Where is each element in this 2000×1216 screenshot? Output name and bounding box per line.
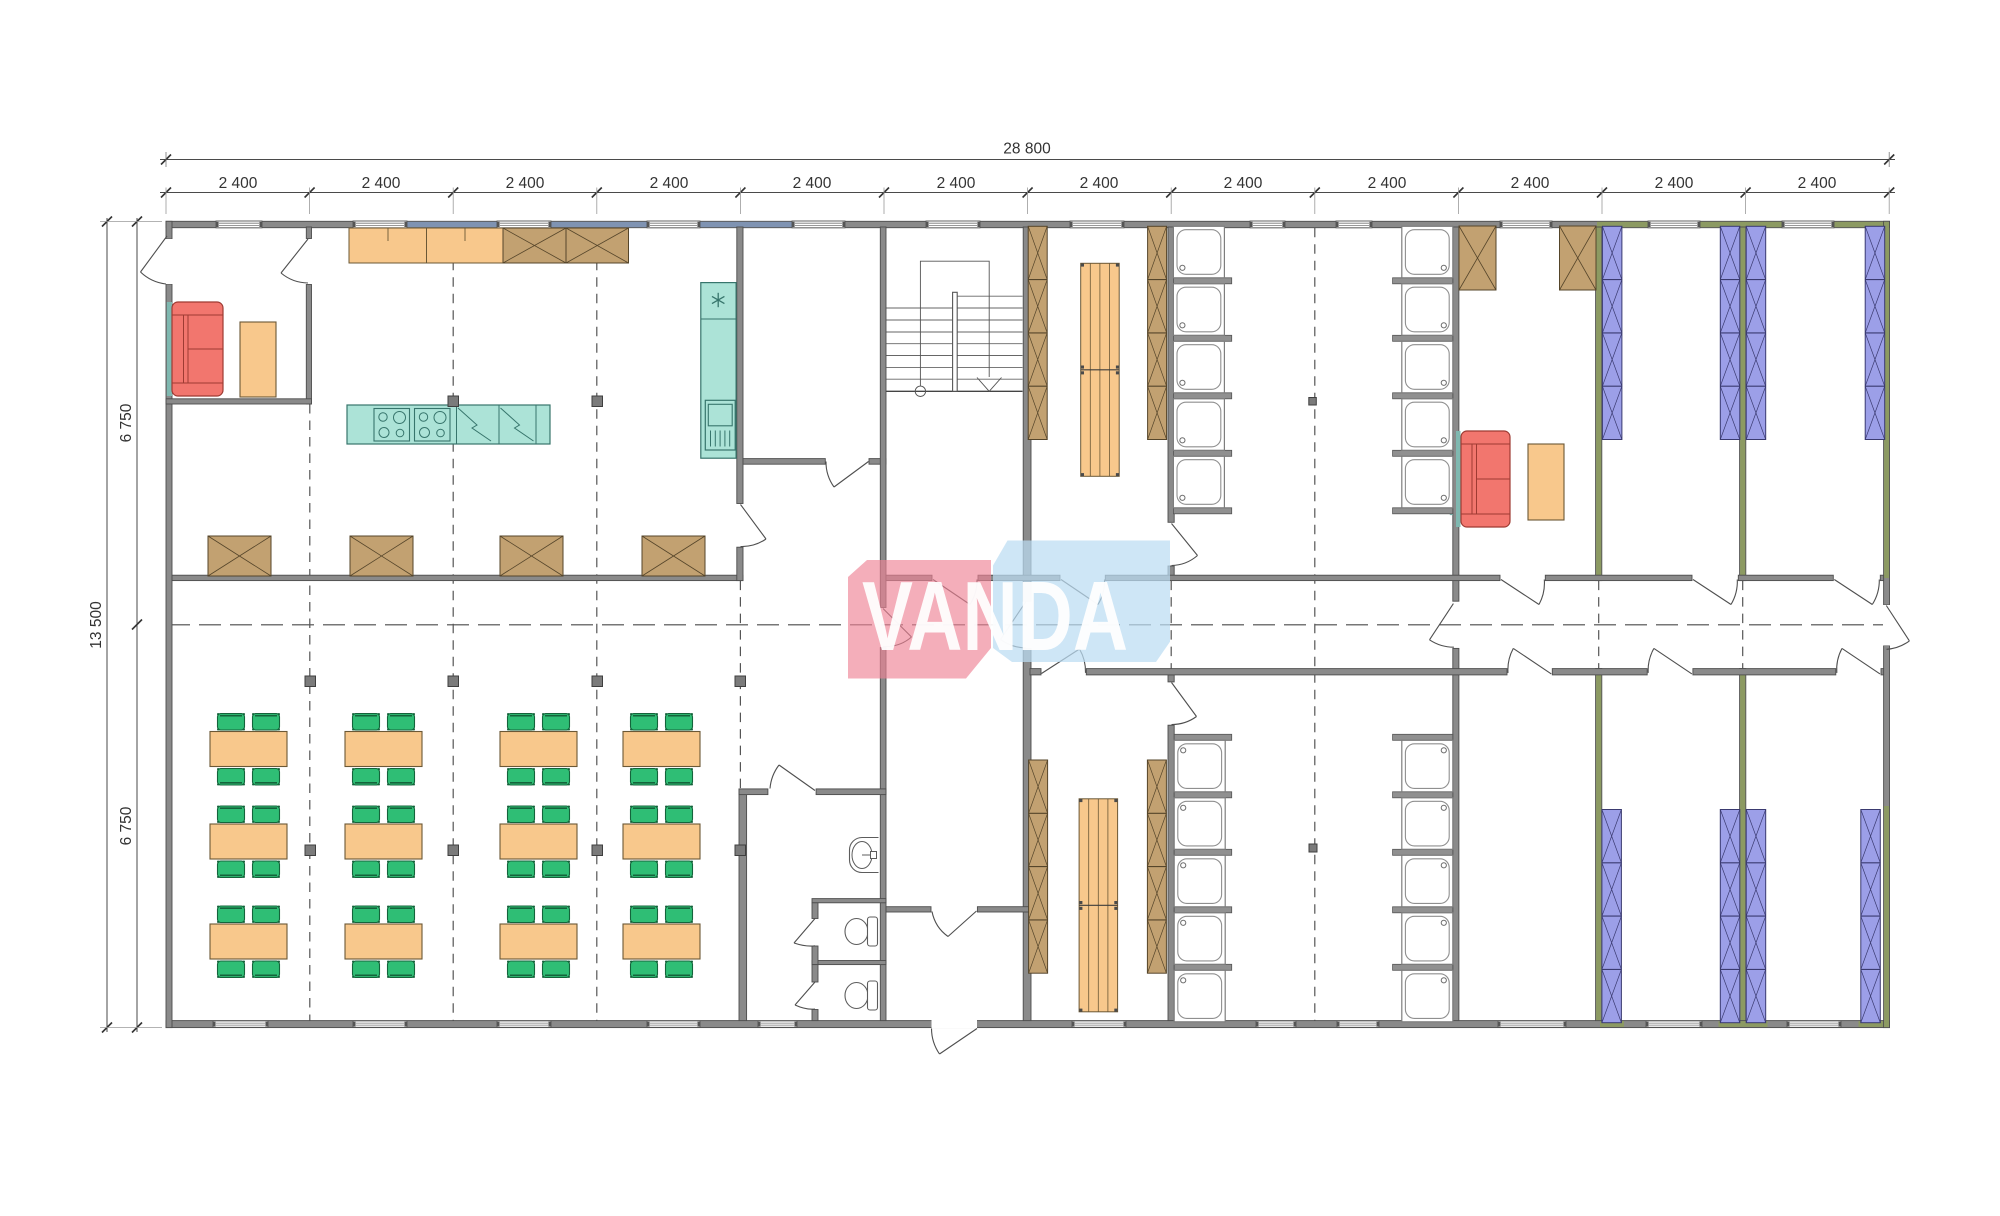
svg-text:2 400: 2 400 xyxy=(793,175,832,192)
svg-text:2 400: 2 400 xyxy=(1798,175,1837,192)
svg-text:13 500: 13 500 xyxy=(88,601,105,649)
svg-text:2 400: 2 400 xyxy=(506,175,545,192)
svg-text:VANDA: VANDA xyxy=(862,561,1128,671)
svg-text:2 400: 2 400 xyxy=(650,175,689,192)
svg-text:6 750: 6 750 xyxy=(118,806,135,845)
svg-text:2 400: 2 400 xyxy=(937,175,976,192)
svg-text:2 400: 2 400 xyxy=(362,175,401,192)
svg-text:6 750: 6 750 xyxy=(118,403,135,442)
svg-text:28 800: 28 800 xyxy=(1003,141,1051,158)
svg-text:2 400: 2 400 xyxy=(1511,175,1550,192)
svg-text:2 400: 2 400 xyxy=(1224,175,1263,192)
svg-text:2 400: 2 400 xyxy=(219,175,258,192)
svg-text:2 400: 2 400 xyxy=(1368,175,1407,192)
svg-text:2 400: 2 400 xyxy=(1655,175,1694,192)
svg-text:2 400: 2 400 xyxy=(1080,175,1119,192)
